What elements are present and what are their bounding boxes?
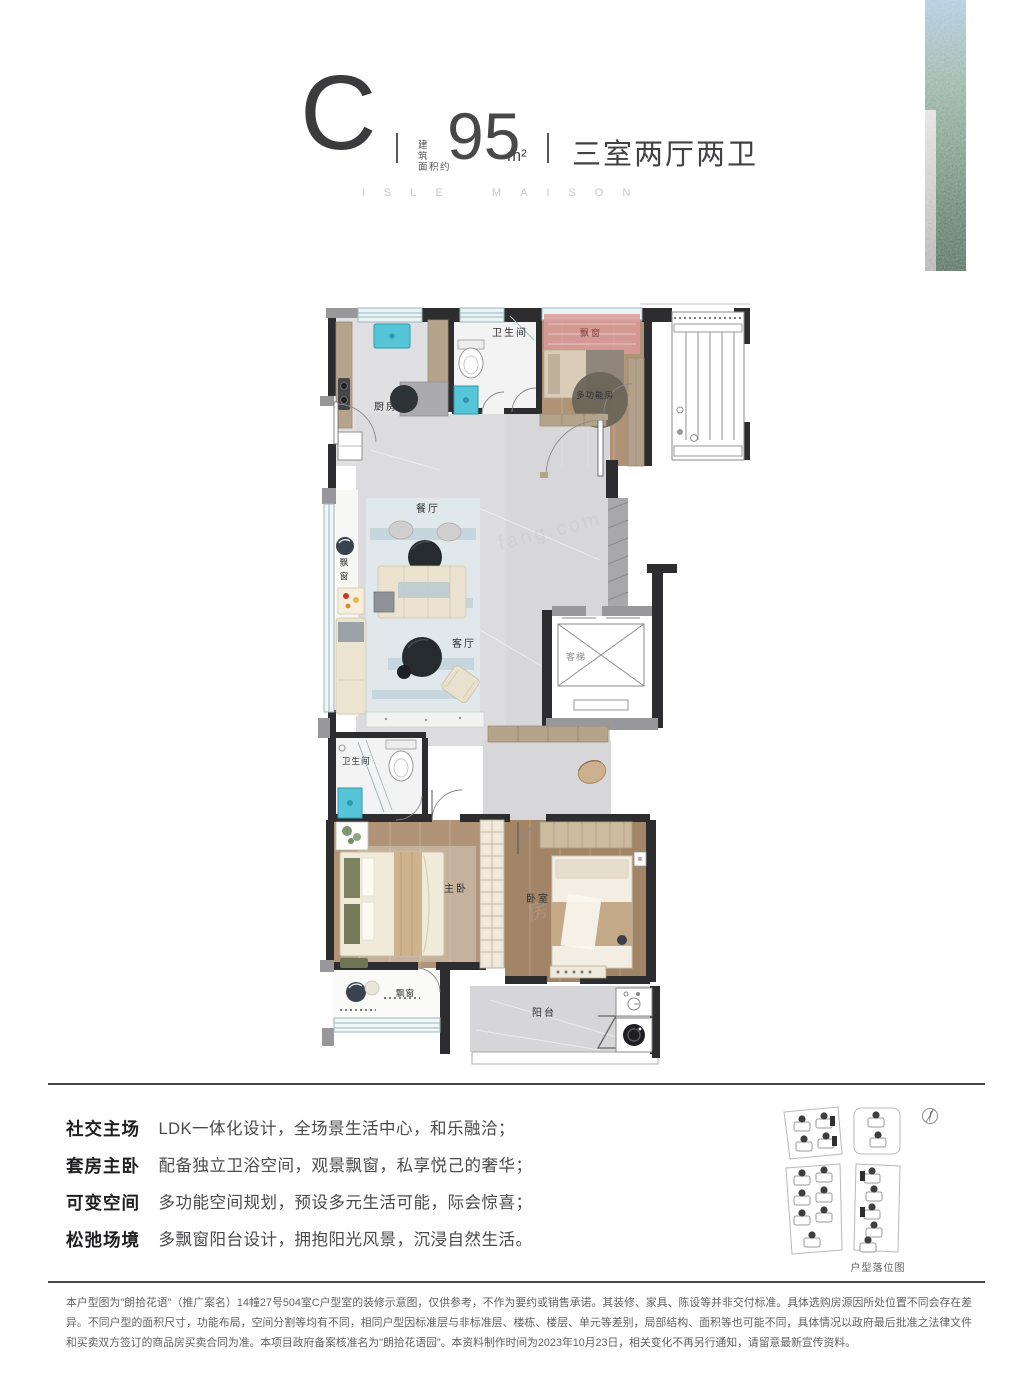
room-label-bay-left: 飘窗: [339, 558, 349, 585]
glass-texture: [925, 0, 966, 271]
room-label-bath-bottom: 卫生间: [342, 756, 371, 766]
elevator: [552, 616, 652, 718]
feature-list: 社交主场 LDK一体化设计，全场景生活中心，和乐融洽； 套房主卧 配备独立卫浴空…: [66, 1119, 532, 1267]
compass-icon: [923, 1109, 938, 1124]
floor-plan-svg: 房天下 fang.com 房天下: [300, 300, 780, 1080]
site-plan: [778, 1102, 978, 1262]
staircase: [640, 304, 750, 460]
feature-description: 多飘窗阳台设计，拥抱阳光风景，沉浸自然生活。: [158, 1230, 532, 1250]
feature-description: 多功能空间规划，预设多元生活可能，际会惊喜；: [158, 1193, 532, 1213]
site-plan-svg: [778, 1102, 978, 1262]
divider-rule-top: [48, 1083, 985, 1085]
room-label-master: 主卧: [444, 882, 468, 895]
layout-description: 三室两厅两卫: [572, 131, 758, 173]
feature-row: 可变空间 多功能空间规划，预设多元生活可能，际会惊喜；: [66, 1193, 532, 1213]
brand-name: ISLE MAISON: [362, 187, 649, 199]
brochure-page: C 建筑 面积约 95 m² 三室两厅两卫 ISLE MAISON: [0, 0, 1032, 1400]
unit-type-letter: C: [300, 60, 377, 166]
living-dining-furniture: [366, 498, 484, 727]
feature-description: LDK一体化设计，全场景生活中心，和乐融洽；: [158, 1119, 515, 1139]
room-label-bay-top: 飘窗: [580, 327, 602, 338]
disclaimer-text: 本户型图为"朗拾花语"（推广案名）14幢27号504室C户型室的装修示意图，仅供…: [66, 1294, 972, 1354]
feature-label: 松弛场境: [66, 1230, 146, 1250]
header-divider-1: [396, 133, 398, 163]
bedroom-furniture: [540, 822, 646, 978]
room-label-bedroom: 卧室: [526, 892, 550, 905]
room-label-kitchen: 厨房: [374, 400, 398, 413]
room-label-living: 客厅: [452, 637, 476, 650]
feature-label: 社交主场: [66, 1119, 146, 1139]
feature-label: 套房主卧: [66, 1156, 146, 1176]
room-label-bay-bottom: 飘窗: [396, 988, 415, 998]
room-label-multi-room: 多功能房: [576, 390, 614, 400]
feature-row: 松弛场境 多飘窗阳台设计，拥抱阳光风景，沉浸自然生活。: [66, 1230, 532, 1250]
feature-row: 社交主场 LDK一体化设计，全场景生活中心，和乐融洽；: [66, 1119, 532, 1139]
site-plan-caption: 户型落位图: [778, 1259, 978, 1274]
room-label-balcony: 阳台: [532, 1006, 556, 1019]
room-label-dining: 餐厅: [416, 502, 440, 515]
decorative-glass-image: [925, 0, 966, 271]
feature-row: 套房主卧 配备独立卫浴空间，观景飘窗，私享悦己的奢华；: [66, 1156, 532, 1176]
room-label-bath-top: 卫生间: [492, 326, 528, 339]
divider-rule-bottom: [48, 1281, 985, 1283]
floor-plan: 房天下 fang.com 房天下: [300, 300, 780, 1080]
feature-label: 可变空间: [66, 1193, 146, 1213]
room-label-elevator: 客梯: [566, 651, 586, 662]
feature-description: 配备独立卫浴空间，观景飘窗，私享悦己的奢华；: [158, 1156, 532, 1176]
area-unit: m²: [507, 146, 527, 166]
header-divider-2: [547, 133, 549, 163]
